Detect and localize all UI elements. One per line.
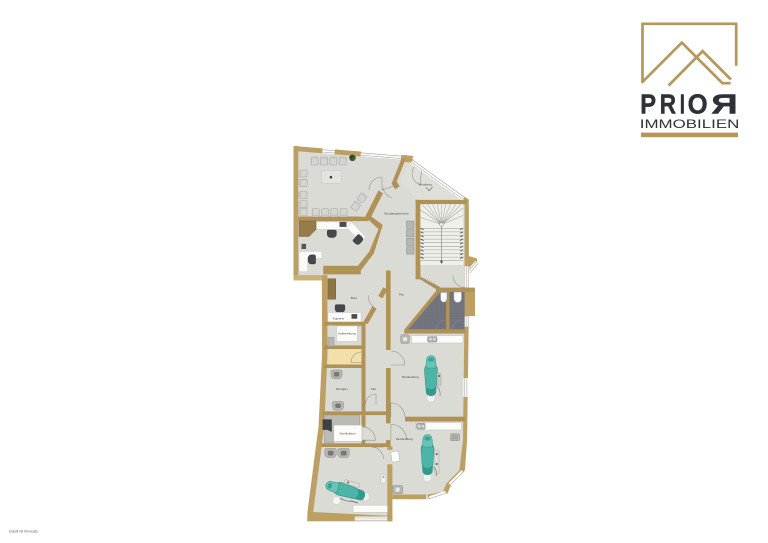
svg-text:Kopierer: Kopierer bbox=[333, 317, 345, 321]
svg-text:Flur: Flur bbox=[399, 293, 404, 297]
svg-text:Empfangsbereich: Empfangsbereich bbox=[384, 212, 408, 216]
svg-text:Behandlung: Behandlung bbox=[402, 375, 419, 379]
svg-text:Sterilisation: Sterilisation bbox=[340, 432, 356, 436]
svg-text:Aufbereitung: Aufbereitung bbox=[338, 331, 356, 335]
svg-text:Flur: Flur bbox=[371, 387, 376, 391]
svg-text:Erstellt mit Immocado: Erstellt mit Immocado bbox=[9, 529, 38, 533]
svg-text:Behandlung: Behandlung bbox=[396, 437, 413, 441]
svg-text:Büro: Büro bbox=[351, 296, 358, 300]
svg-text:Windfang: Windfang bbox=[418, 183, 431, 187]
svg-text:O: O bbox=[688, 88, 708, 119]
svg-text:R: R bbox=[711, 88, 738, 119]
svg-text:P: P bbox=[640, 88, 656, 119]
svg-text:Röntgen: Röntgen bbox=[336, 387, 348, 391]
svg-text:IMMOBILIEN: IMMOBILIEN bbox=[640, 117, 740, 131]
svg-text:I: I bbox=[680, 88, 685, 119]
svg-text:R: R bbox=[660, 88, 677, 119]
